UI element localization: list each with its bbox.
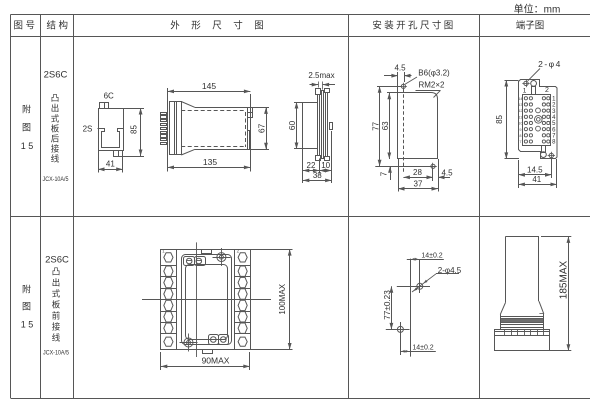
- svg-text:单位：mm: 单位：mm: [514, 1, 561, 16]
- svg-text:8: 8: [552, 140, 556, 146]
- svg-text:JCX-10A/5: JCX-10A/5: [43, 177, 70, 183]
- svg-text:图: 图: [254, 18, 264, 32]
- svg-text:2: 2: [545, 87, 549, 94]
- svg-text:安装开孔尺寸图: 安装开孔尺寸图: [372, 18, 455, 32]
- svg-text:B6(φ3.2): B6(φ3.2): [418, 68, 450, 77]
- svg-text:图: 图: [22, 300, 31, 313]
- svg-text:图: 图: [22, 121, 31, 134]
- svg-text:4.5: 4.5: [394, 64, 406, 73]
- svg-text:3: 3: [552, 109, 556, 115]
- svg-text:端子图: 端子图: [516, 18, 545, 32]
- svg-text:7: 7: [519, 140, 521, 144]
- svg-text:38: 38: [313, 171, 322, 180]
- svg-text:线: 线: [52, 332, 61, 344]
- svg-text:6: 6: [552, 127, 556, 133]
- svg-text:12: 12: [518, 109, 522, 113]
- svg-text:7: 7: [552, 134, 556, 140]
- svg-text:11: 11: [518, 115, 522, 119]
- svg-text:8: 8: [519, 134, 521, 138]
- svg-text:28: 28: [413, 168, 422, 177]
- svg-text:10: 10: [518, 122, 522, 126]
- svg-text:14±0.2: 14±0.2: [421, 253, 442, 260]
- svg-text:85: 85: [130, 125, 139, 134]
- svg-text:67: 67: [257, 123, 267, 133]
- svg-text:7: 7: [380, 171, 389, 176]
- svg-text:63: 63: [381, 121, 390, 130]
- svg-text:RM2×2: RM2×2: [418, 80, 445, 89]
- svg-text:2-φ4: 2-φ4: [538, 59, 562, 69]
- svg-text:37: 37: [414, 180, 423, 189]
- svg-text:14.5: 14.5: [527, 166, 543, 175]
- svg-text:附: 附: [22, 103, 31, 116]
- svg-text:6C: 6C: [104, 92, 114, 101]
- svg-text:22: 22: [307, 161, 316, 170]
- svg-text:77±0.23: 77±0.23: [383, 290, 392, 320]
- svg-text:100MAX: 100MAX: [278, 283, 287, 314]
- svg-text:4: 4: [552, 115, 556, 121]
- svg-text:14±0.2: 14±0.2: [412, 344, 433, 351]
- svg-text:10: 10: [321, 161, 330, 170]
- svg-text:2.5max: 2.5max: [308, 71, 334, 80]
- svg-text:185MAX: 185MAX: [559, 260, 570, 299]
- svg-text:线: 线: [51, 152, 60, 164]
- svg-text:2: 2: [552, 103, 556, 109]
- svg-text:41: 41: [532, 175, 541, 184]
- svg-text:77: 77: [372, 121, 381, 130]
- svg-text:结: 结: [46, 18, 56, 32]
- svg-text:1 5: 1 5: [21, 320, 34, 330]
- svg-text:90MAX: 90MAX: [202, 355, 230, 365]
- svg-text:2S6C: 2S6C: [44, 70, 68, 81]
- svg-text:1: 1: [523, 87, 527, 94]
- svg-text:60: 60: [287, 121, 297, 131]
- svg-text:尺: 尺: [212, 18, 222, 32]
- svg-text:2S: 2S: [83, 124, 93, 133]
- svg-text:1: 1: [552, 97, 556, 103]
- svg-text:9: 9: [519, 128, 521, 132]
- svg-text:14: 14: [518, 97, 522, 101]
- svg-text:号: 号: [25, 18, 35, 32]
- svg-text:1 5: 1 5: [21, 141, 34, 151]
- svg-text:85: 85: [495, 114, 504, 123]
- svg-text:形: 形: [191, 18, 201, 32]
- svg-text:2S6C: 2S6C: [45, 255, 69, 266]
- svg-text:寸: 寸: [233, 18, 243, 32]
- svg-text:145: 145: [202, 81, 216, 91]
- svg-text:135: 135: [203, 157, 217, 167]
- svg-text:外: 外: [170, 18, 180, 32]
- svg-text:附: 附: [22, 282, 31, 295]
- svg-text:5: 5: [552, 121, 556, 127]
- svg-text:13: 13: [518, 103, 522, 107]
- svg-text:构: 构: [58, 18, 68, 32]
- svg-text:JCX-10A/5: JCX-10A/5: [43, 351, 70, 357]
- svg-text:图: 图: [13, 18, 23, 32]
- svg-text:41: 41: [106, 159, 115, 168]
